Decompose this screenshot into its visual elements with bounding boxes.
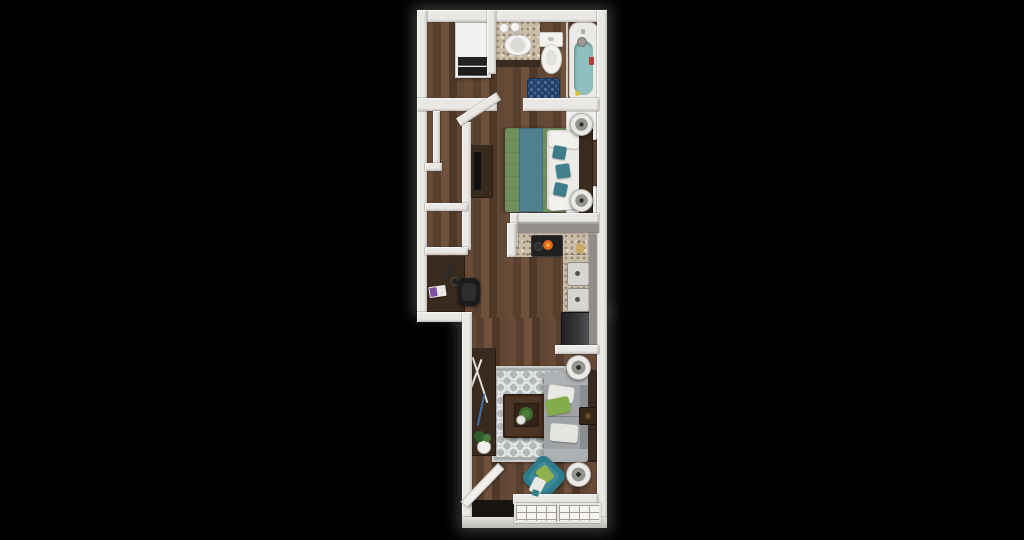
window-right (557, 503, 601, 523)
room-entry (467, 455, 515, 520)
wall-right (597, 10, 607, 528)
room-desk-nook (425, 255, 470, 312)
room-laundry (425, 20, 487, 98)
room-closets (425, 111, 462, 247)
wall-bath-bottom-right (523, 98, 599, 111)
floor-plan-canvas (0, 0, 1024, 540)
wall-closet-bottom (425, 247, 468, 255)
window-left (514, 503, 559, 523)
room-bedroom (470, 111, 597, 213)
wall-bedroom-bottom (510, 213, 599, 223)
room-bathroom (495, 20, 597, 98)
